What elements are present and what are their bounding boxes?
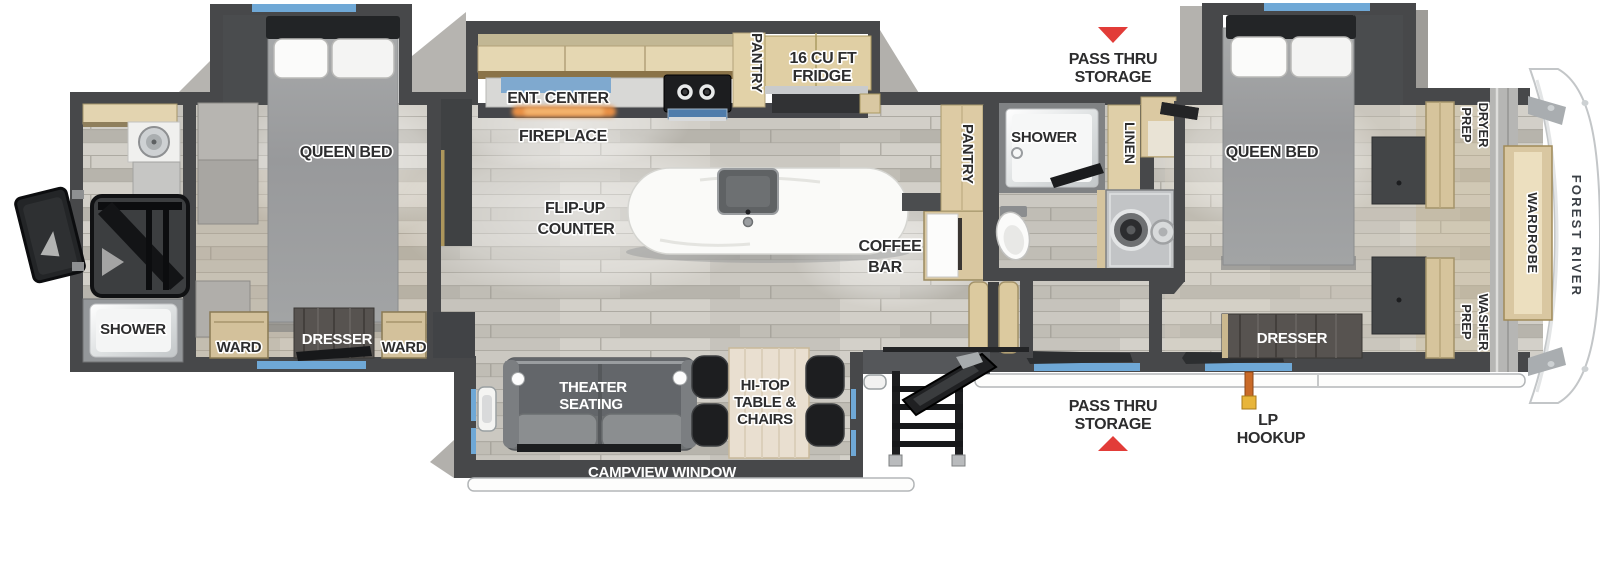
- svg-text:PREP: PREP: [1459, 304, 1474, 340]
- svg-text:STORAGE: STORAGE: [1075, 69, 1152, 86]
- svg-text:FLIP-UP: FLIP-UP: [545, 200, 606, 217]
- svg-text:16 CU FT: 16 CU FT: [790, 50, 857, 67]
- svg-text:PREP: PREP: [1459, 107, 1474, 143]
- svg-text:SEATING: SEATING: [559, 396, 622, 413]
- svg-text:DRESSER: DRESSER: [1257, 330, 1328, 347]
- svg-text:COFFEE: COFFEE: [858, 238, 922, 255]
- svg-text:PASS THRU: PASS THRU: [1069, 398, 1158, 415]
- svg-text:FOREST RIVER: FOREST RIVER: [1569, 175, 1584, 297]
- svg-text:DRESSER: DRESSER: [302, 331, 373, 348]
- svg-text:FRIDGE: FRIDGE: [793, 68, 852, 85]
- svg-text:STORAGE: STORAGE: [1075, 416, 1152, 433]
- svg-text:LINEN: LINEN: [1122, 122, 1138, 164]
- svg-text:BAR: BAR: [868, 259, 903, 276]
- svg-text:CHAIRS: CHAIRS: [737, 411, 793, 428]
- svg-text:WARD: WARD: [217, 339, 262, 356]
- svg-text:ENT. CENTER: ENT. CENTER: [507, 90, 609, 107]
- svg-text:LP: LP: [1258, 412, 1278, 429]
- svg-text:COUNTER: COUNTER: [537, 221, 615, 238]
- svg-text:SHOWER: SHOWER: [1011, 129, 1077, 146]
- svg-text:SHOWER: SHOWER: [100, 321, 166, 338]
- svg-text:QUEEN BED: QUEEN BED: [1226, 144, 1318, 161]
- svg-text:TABLE &: TABLE &: [734, 394, 796, 411]
- svg-text:PANTRY: PANTRY: [959, 124, 976, 184]
- svg-text:HI-TOP: HI-TOP: [741, 377, 790, 394]
- svg-text:QUEEN BED: QUEEN BED: [300, 144, 392, 161]
- svg-text:FIREPLACE: FIREPLACE: [519, 128, 608, 145]
- svg-text:WARDROBE: WARDROBE: [1525, 192, 1540, 273]
- svg-text:THEATER: THEATER: [559, 379, 627, 396]
- svg-text:DRYER: DRYER: [1476, 102, 1491, 148]
- svg-text:WARD: WARD: [382, 339, 427, 356]
- svg-text:PASS THRU: PASS THRU: [1069, 51, 1158, 68]
- svg-text:CAMPVIEW WINDOW: CAMPVIEW WINDOW: [588, 464, 737, 481]
- svg-text:PANTRY: PANTRY: [748, 33, 765, 93]
- svg-text:HOOKUP: HOOKUP: [1237, 430, 1306, 447]
- svg-text:WASHER: WASHER: [1476, 293, 1491, 351]
